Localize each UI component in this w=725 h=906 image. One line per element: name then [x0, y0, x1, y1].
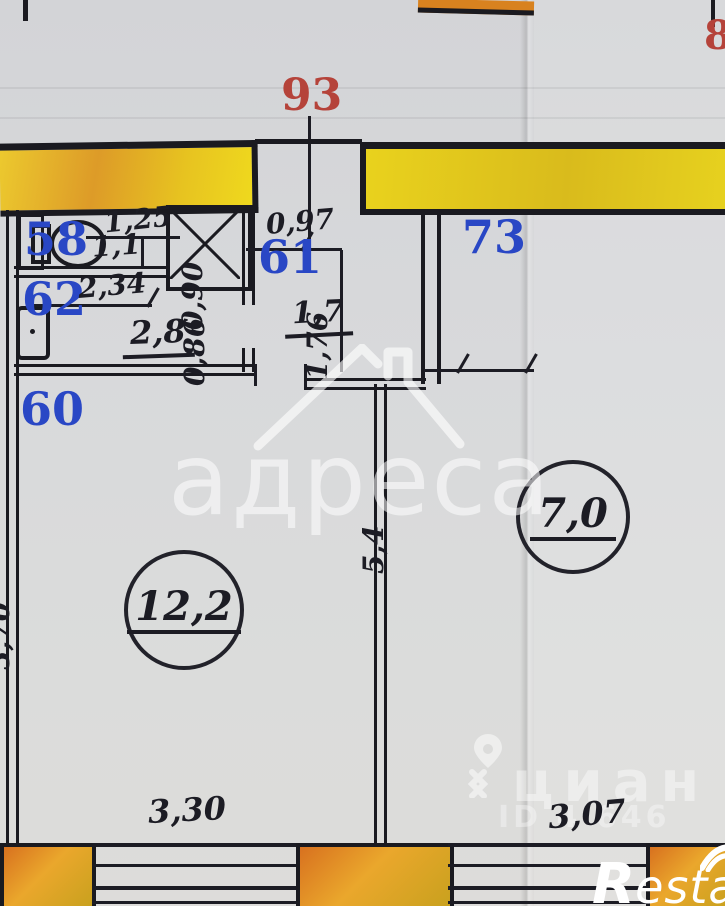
dimension-3-70: 3,70 — [0, 602, 14, 670]
dimension-0-97: 0,97 — [265, 205, 335, 239]
apartment-number-8: 8 — [704, 16, 725, 56]
restate-logo: Restate — [592, 852, 725, 906]
room-number-60: 60 — [20, 386, 84, 432]
wall-opening-lintel — [255, 139, 362, 144]
window-right-line — [448, 843, 648, 847]
adjacent-plan-fragment — [418, 0, 534, 16]
wall-pier-bottom-center — [296, 843, 454, 906]
apartment-number-93: 93 — [281, 74, 342, 118]
dim-tick-1-1 — [141, 238, 144, 268]
window-left-line — [92, 901, 298, 904]
floor-plan-sheet: 93 8 58 62 60 61 7 — [0, 0, 725, 906]
watermark-adresa: адреса — [168, 430, 552, 530]
dimension-2-34: 2,34 — [77, 269, 147, 303]
wall-pier-bottom-left — [0, 843, 96, 906]
paper-crease-line — [0, 87, 725, 89]
window-left-line — [92, 886, 298, 890]
area-61: 1,7 — [283, 296, 353, 330]
wall-top-right — [360, 142, 725, 215]
dimension-3-30: 3,30 — [147, 792, 227, 828]
area-circle-12-2: 12,2 — [124, 550, 244, 670]
restate-logo-text: estate — [635, 860, 725, 906]
room-number-58: 58 — [24, 216, 88, 262]
restate-logo-r: R — [592, 852, 635, 906]
cian-logo-icon — [458, 732, 510, 802]
dimension-3-07: 3,07 — [547, 795, 627, 834]
room-number-73: 73 — [462, 214, 526, 260]
area-62: 2,8 — [121, 315, 194, 349]
area-60: 12,2 — [127, 587, 240, 634]
paper-crease-line — [0, 117, 725, 119]
dim-tick-2-34 — [146, 287, 160, 308]
window-left-line — [92, 843, 298, 847]
cutoff-line-top-left — [23, 0, 28, 21]
window-left-line — [92, 864, 298, 867]
wall-62-60 — [14, 364, 256, 376]
room-number-62: 62 — [22, 276, 86, 322]
wall-left-outer — [6, 210, 19, 845]
dimension-1-1: 1,1 — [91, 230, 142, 261]
